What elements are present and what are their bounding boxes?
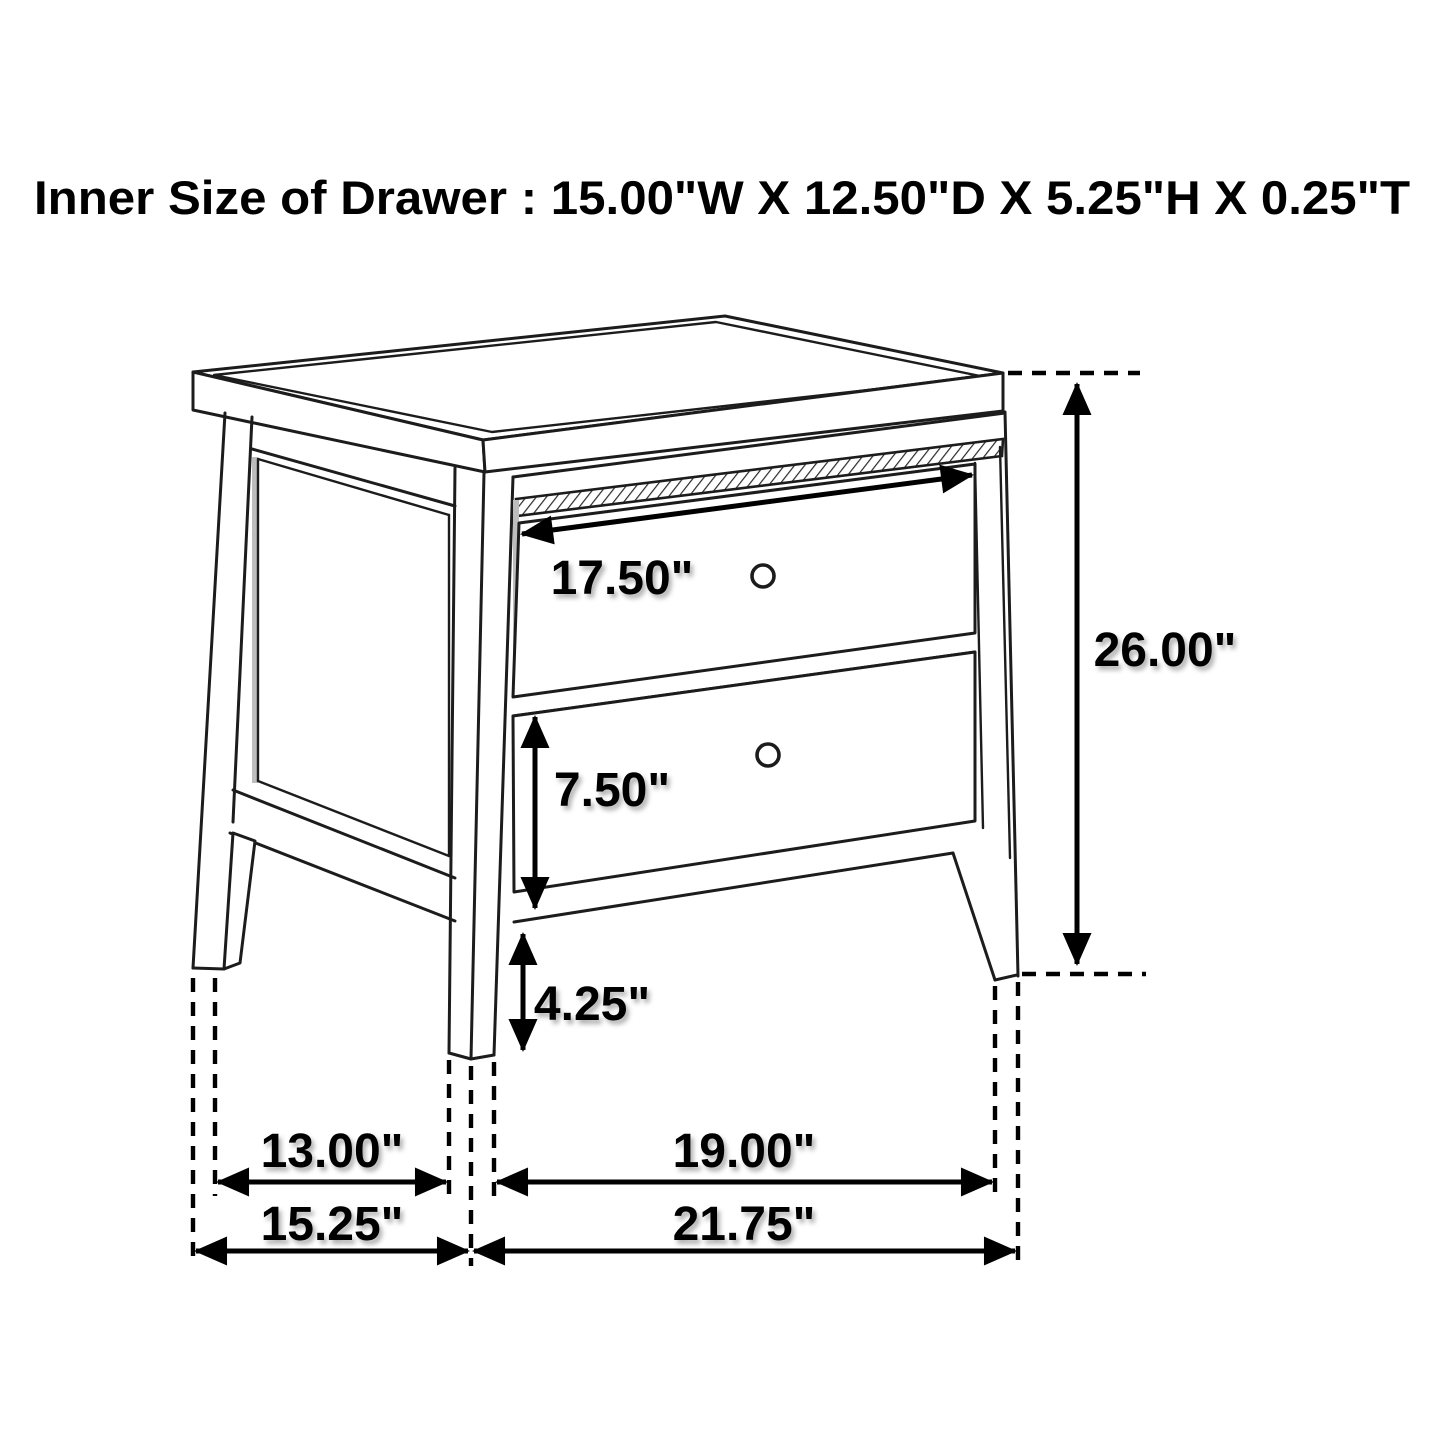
dim-floor-clearance: 4.25" [523, 934, 650, 1050]
dim-overall-depth: 15.25" [196, 1198, 468, 1251]
dim-label-15-25: 15.25" [261, 1198, 404, 1251]
side-panel [193, 413, 455, 969]
dim-label-19-00: 19.00" [673, 1125, 816, 1178]
dim-front-leg-span: 19.00" [497, 1125, 992, 1182]
dim-label-4-25: 4.25" [534, 978, 650, 1031]
dim-label-21-75: 21.75" [673, 1198, 816, 1251]
dim-side-leg-span: 13.00" [218, 1125, 446, 1182]
dim-label-7-50: 7.50" [554, 764, 670, 817]
diagram-canvas: Inner Size of Drawer : 15.00"W X 12.50"D… [0, 0, 1445, 1445]
diagram-title: Inner Size of Drawer : 15.00"W X 12.50"D… [34, 171, 1410, 224]
front-face [513, 413, 1005, 922]
dim-label-13-00: 13.00" [261, 1125, 404, 1178]
bottom-drawer-knob [757, 744, 779, 766]
dim-overall-width: 21.75" [474, 1198, 1015, 1251]
nightstand-drawing [193, 316, 1018, 1059]
top-drawer-knob [752, 565, 774, 587]
dim-overall-height: 26.00" [1008, 373, 1236, 974]
dim-label-17-50: 17.50" [551, 552, 694, 605]
nightstand-dimension-diagram: Inner Size of Drawer : 15.00"W X 12.50"D… [0, 0, 1445, 1445]
top-slab [193, 316, 1003, 472]
dim-label-26-00: 26.00" [1094, 624, 1237, 677]
front-left-leg [449, 468, 513, 1059]
